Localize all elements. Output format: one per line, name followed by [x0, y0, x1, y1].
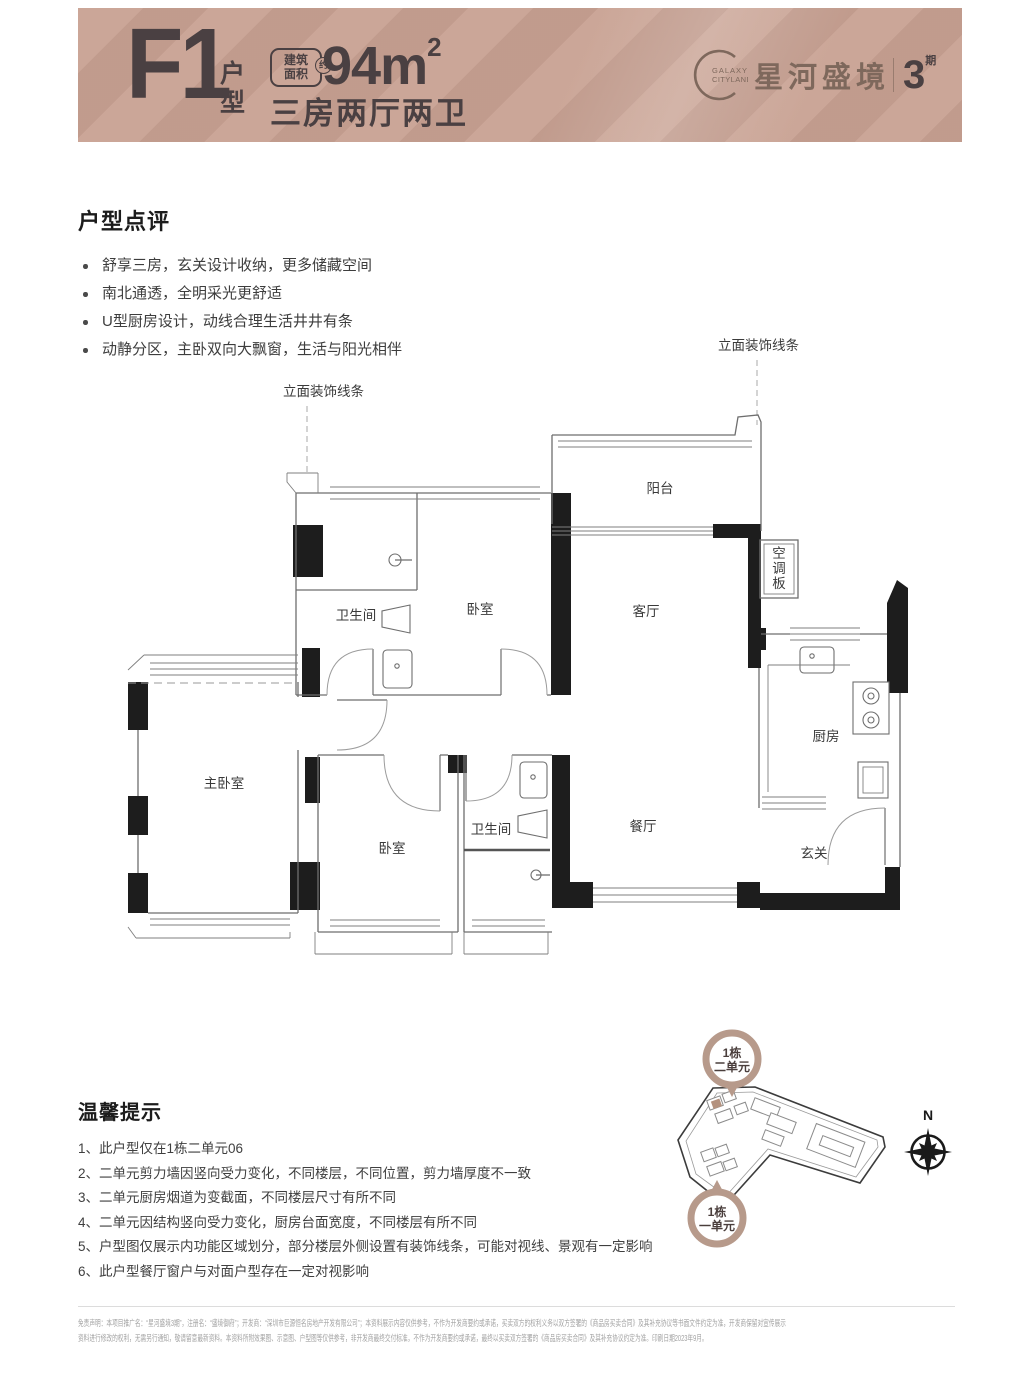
tip-item: 3、二单元厨房烟道为变截面，不同楼层尺寸有所不同: [78, 1186, 698, 1211]
floor-plan: 立面装饰线条 立面装饰线条: [100, 330, 960, 990]
review-bullet: U型厨房设计，动线合理生活井井有条: [78, 314, 638, 330]
room-label-bedroom-bottom: 卧室: [379, 840, 406, 856]
toilet-icon: [382, 605, 410, 633]
tip-item: 2、二单元剪力墙因竖向受力变化，不同楼层，不同位置，剪力墙厚度不一致: [78, 1162, 698, 1187]
room-label-entry: 玄关: [801, 845, 828, 861]
facade-callout-right: 立面装饰线条: [718, 337, 799, 353]
ac-board-char2: 调: [772, 561, 786, 576]
ac-board: 空 调 板: [760, 540, 798, 598]
compass-north-label: N: [923, 1107, 933, 1123]
tip-item: 4、二单元因结构竖向受力变化，厨房台面宽度，不同楼层有所不同: [78, 1211, 698, 1236]
unit-code: F1: [126, 14, 228, 114]
area-superscript: 2: [427, 32, 440, 62]
callout-unit1-line2: 一单元: [699, 1218, 735, 1233]
room-label-balcony: 阳台: [647, 481, 674, 496]
washbasin-icon: [520, 762, 547, 798]
brand-c-ring-icon: GALAXY CITYLAND: [690, 46, 748, 104]
area-badge-line1: 建筑: [276, 53, 316, 67]
walls: [128, 415, 900, 954]
tip-item: 1、此户型仅在1栋二单元06: [78, 1137, 698, 1162]
brochure-page: { "header": { "unit_code": "F1", "unit_l…: [0, 0, 1032, 1400]
area-badge-line2: 面积: [276, 67, 316, 81]
room-label-master: 主卧室: [204, 775, 245, 791]
room-label-dining: 餐厅: [630, 819, 657, 834]
callout-unit1-line1: 1栋: [708, 1204, 727, 1219]
brand-phase: 3期: [903, 55, 937, 95]
ac-board-char3: 板: [772, 576, 786, 591]
layout-description: 三房两厅两卫: [270, 88, 468, 133]
brand-separator: [893, 58, 894, 92]
room-label-bath-top: 卫生间: [336, 608, 377, 623]
callout-unit2-line2: 二单元: [714, 1059, 750, 1074]
review-title: 户型点评: [78, 204, 638, 236]
review-bullet: 舒享三房，玄关设计收纳，更多储藏空间: [78, 258, 638, 274]
review-bullet: 南北通透，全明采光更舒适: [78, 286, 638, 302]
footer-divider: [78, 1306, 955, 1307]
toilet-icon: [518, 810, 547, 838]
room-label-bath-bottom: 卫生间: [471, 822, 512, 837]
tip-item: 6、此户型餐厅窗户与对面户型存在一定对视影响: [78, 1260, 698, 1285]
header-band: F1 户型 建筑 面积 约 94m2 三房两厅两卫 GALAXY CITYLAN…: [78, 8, 962, 142]
room-label-bedroom-top: 卧室: [467, 601, 494, 617]
brand-en-line2: CITYLAND: [712, 75, 748, 84]
area-badge-box: 建筑 面积: [270, 48, 322, 87]
site-plan: 1栋 二单元 1栋 一单元 N: [650, 1020, 970, 1285]
brand-en-line1: GALAXY: [712, 66, 748, 75]
tips-list: 1、此户型仅在1栋二单元06 2、二单元剪力墙因竖向受力变化，不同楼层，不同位置…: [78, 1137, 698, 1285]
facade-callout-left: 立面装饰线条: [283, 383, 364, 399]
callout-unit2-line1: 1栋: [723, 1045, 742, 1060]
tips-section: 温馨提示 1、此户型仅在1栋二单元06 2、二单元剪力墙因竖向受力变化，不同楼层…: [78, 1096, 698, 1285]
brand-name: 星河盛境: [754, 54, 890, 96]
disclaimer-line1: 免责声明：本项目推广名：“星河盛境3期”，注册名：“盛境御府”；开发商：“深圳市…: [78, 1316, 955, 1331]
washbasin-icon: [383, 650, 412, 688]
room-label-kitchen: 厨房: [813, 729, 840, 744]
kitchen-sink-icon: [800, 647, 834, 673]
unit-code-label: 户型: [220, 60, 248, 118]
compass-icon: N: [904, 1107, 952, 1176]
tip-item: 5、户型图仅展示内功能区域划分，部分楼层外侧设置有装饰线条，可能对视线、景观有一…: [78, 1235, 698, 1260]
tips-title: 温馨提示: [78, 1096, 698, 1125]
brand-phase-unit: 期: [925, 55, 937, 67]
ac-board-char1: 空: [772, 546, 786, 561]
area-badge: 建筑 面积 约: [270, 48, 322, 87]
brand-logo: GALAXY CITYLAND 星河盛境 3期: [690, 46, 937, 104]
disclaimer: 免责声明：本项目推广名：“星河盛境3期”，注册名：“盛境御府”；开发商：“深圳市…: [78, 1316, 955, 1345]
room-label-living: 客厅: [633, 603, 660, 619]
disclaimer-line2: 资料进行修改的权利，无需另行通知，敬请留意最新资料。本资料所附效果图、示意图、户…: [78, 1331, 955, 1346]
